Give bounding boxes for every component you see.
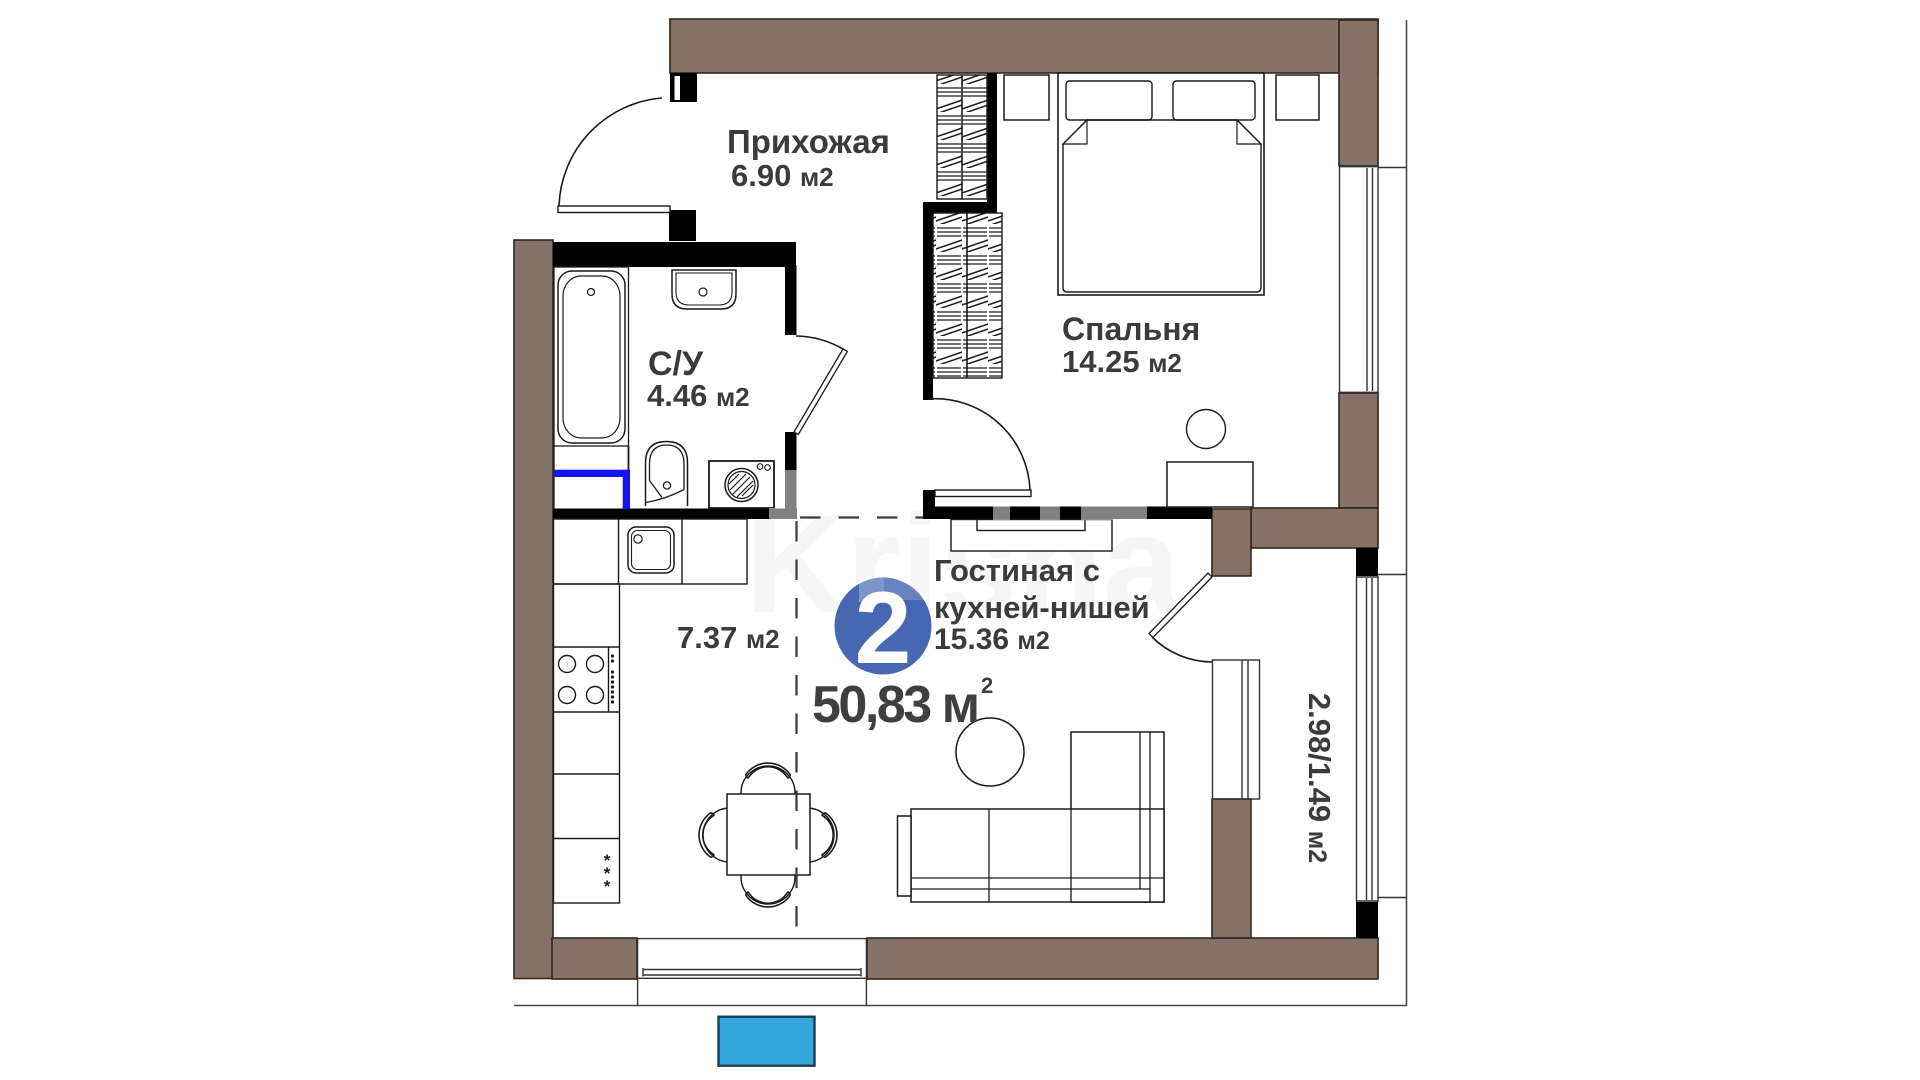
svg-text:2.98/1.49 м2: 2.98/1.49 м2: [1302, 693, 1337, 863]
svg-text:15.36 м2: 15.36 м2: [934, 623, 1050, 656]
svg-text:кухней-нишей: кухней-нишей: [934, 590, 1150, 625]
svg-text:Спальня: Спальня: [1062, 311, 1200, 347]
svg-text:2: 2: [981, 673, 993, 698]
svg-text:4.46 м2: 4.46 м2: [647, 378, 750, 413]
svg-text:7.37 м2: 7.37 м2: [677, 620, 780, 655]
svg-text:Гостиная с: Гостиная с: [934, 553, 1100, 588]
svg-text:*: *: [604, 877, 611, 896]
svg-text:Прихожая: Прихожая: [727, 123, 890, 160]
svg-text:6.90 м2: 6.90 м2: [731, 158, 834, 193]
svg-text:14.25 м2: 14.25 м2: [1062, 344, 1182, 379]
